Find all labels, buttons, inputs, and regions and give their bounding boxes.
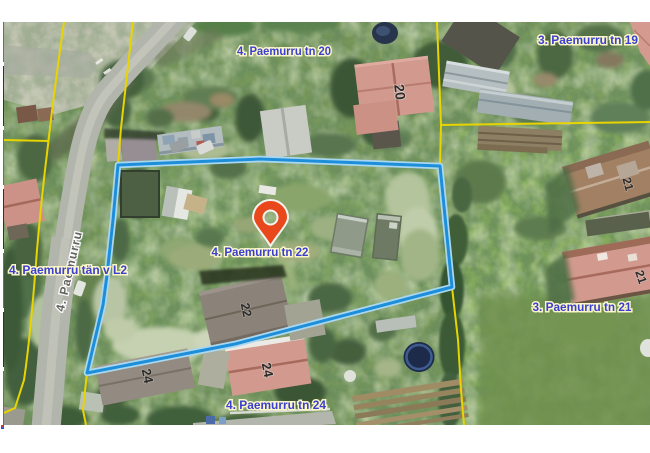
svg-text:3. Paemurru tn 19: 3. Paemurru tn 19 — [538, 33, 638, 47]
svg-text:22: 22 — [238, 302, 255, 319]
svg-text:3. Paemurru tn 21: 3. Paemurru tn 21 — [533, 300, 632, 314]
svg-text:4. Paemurru tn 24: 4. Paemurru tn 24 — [226, 398, 326, 412]
svg-text:4. Paemurru tän v L2: 4. Paemurru tän v L2 — [9, 263, 127, 277]
svg-text:4. Paemurru tn 20: 4. Paemurru tn 20 — [237, 44, 331, 58]
svg-text:20: 20 — [391, 83, 409, 101]
svg-text:4. Paemurru tn 22: 4. Paemurru tn 22 — [212, 245, 309, 259]
